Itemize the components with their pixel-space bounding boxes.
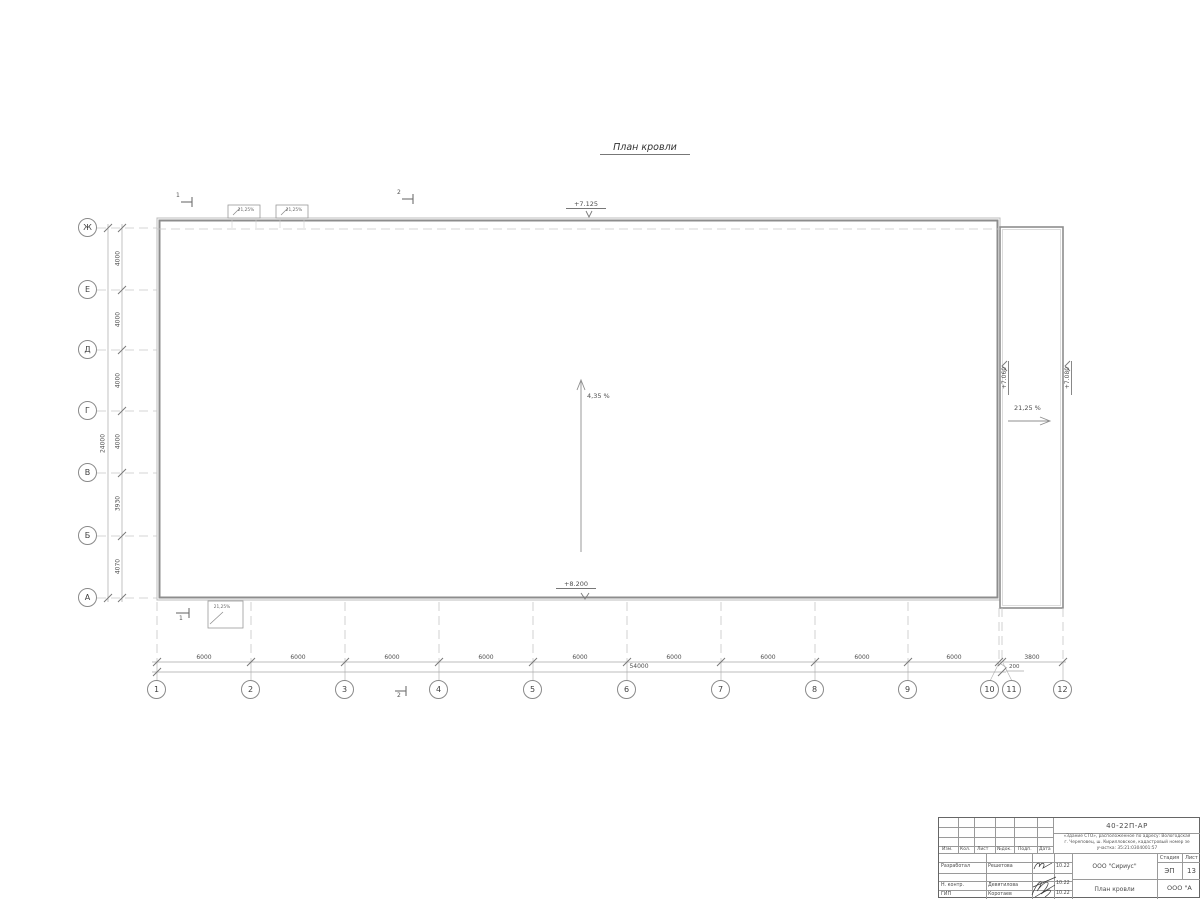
col-dim: 6000 (466, 654, 506, 661)
signatures (938, 817, 1200, 898)
col-bubble: 10 (980, 680, 999, 699)
col-dim: 6000 (654, 654, 694, 661)
col-bubble: 1 (147, 680, 166, 699)
elevation-top: +7.125 (566, 200, 606, 209)
col-dim: 6000 (748, 654, 788, 661)
col-dim-3800: 3800 (1012, 654, 1052, 661)
row-dim: 4000 (115, 427, 122, 457)
row-bubble: Г (78, 401, 97, 420)
col-dim: 6000 (842, 654, 882, 661)
row-total-dim: 24000 (100, 429, 107, 459)
drawing-lines (0, 0, 1200, 900)
row-dim: 4070 (115, 552, 122, 582)
rooflight-slope-label: 21,25% (210, 605, 234, 610)
signature-scribble (1032, 863, 1056, 897)
col-bubble: 6 (617, 680, 636, 699)
col-bubble: 12 (1053, 680, 1072, 699)
col-bubble: 7 (711, 680, 730, 699)
row-dim: 3930 (115, 489, 122, 519)
row-dim: 4000 (115, 305, 122, 335)
col-total-dim: 54000 (619, 663, 659, 670)
rooflight-slope-label: 21,25% (282, 208, 306, 213)
drawing-title: План кровли (600, 142, 690, 155)
slope-label-main: 4,35 % (587, 392, 610, 400)
col-dim: 6000 (372, 654, 412, 661)
section-mark-label: 1 (179, 615, 183, 622)
row-bubble: В (78, 463, 97, 482)
section-mark-label: 2 (397, 189, 401, 196)
row-bubble: А (78, 588, 97, 607)
col-dim-200: 200 (1009, 664, 1020, 670)
col-bubble: 2 (241, 680, 260, 699)
col-dim: 6000 (184, 654, 224, 661)
row-dim: 4000 (115, 366, 122, 396)
elevation-bottom: +8.200 (556, 580, 596, 589)
col-bubble: 8 (805, 680, 824, 699)
row-dim: 4000 (115, 244, 122, 274)
rooflight-slope-label: 21,25% (234, 208, 258, 213)
section-mark-label: 2 (397, 692, 401, 699)
slope-label-right: 21,25 % (1014, 404, 1041, 412)
building-outline (157, 218, 1063, 608)
col-dim: 6000 (278, 654, 318, 661)
elevation-right-outer: +7.080 (1064, 361, 1072, 395)
row-bubble: Б (78, 526, 97, 545)
col-bubble: 4 (429, 680, 448, 699)
section-mark-label: 1 (176, 192, 180, 199)
col-bubble: 3 (335, 680, 354, 699)
col-bubble: 9 (898, 680, 917, 699)
col-dim: 6000 (934, 654, 974, 661)
col-bubble: 5 (523, 680, 542, 699)
elevation-right-inner: +7.060 (1001, 361, 1009, 395)
col-bubble: 11 (1002, 680, 1021, 699)
col-dim: 6000 (560, 654, 600, 661)
row-bubble: Е (78, 280, 97, 299)
bubble-leaders (157, 662, 1063, 681)
roof-plan-sheet: План кровли Ж Е Д Г В Б А 1 2 3 4 5 6 7 … (0, 0, 1200, 900)
row-bubble: Д (78, 340, 97, 359)
row-bubble: Ж (78, 218, 97, 237)
